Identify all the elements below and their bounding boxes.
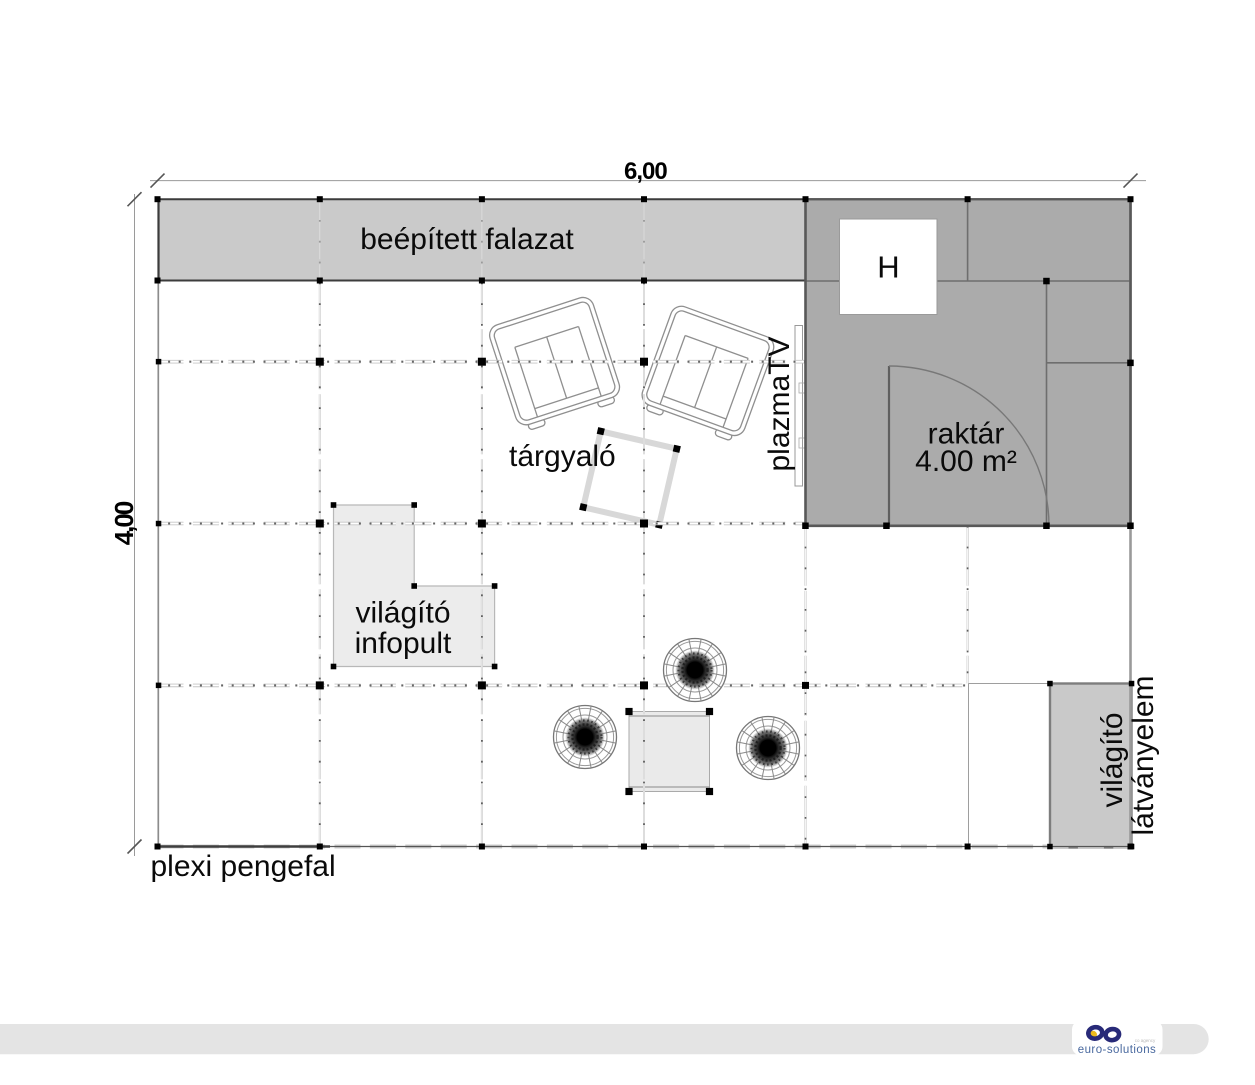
svg-text:plexi pengefal: plexi pengefal xyxy=(151,850,336,883)
svg-text:plazmaTV: plazmaTV xyxy=(763,336,796,471)
svg-text:4.00 m²: 4.00 m² xyxy=(915,445,1017,478)
svg-text:látványelem: látványelem xyxy=(1127,675,1160,835)
svg-text:világító: világító xyxy=(1096,712,1129,807)
svg-text:6,00: 6,00 xyxy=(624,158,667,185)
svg-text:euro-solutions: euro-solutions xyxy=(1078,1044,1157,1056)
svg-text:tárgyaló: tárgyaló xyxy=(509,440,616,473)
svg-text:4,00: 4,00 xyxy=(109,501,139,545)
svg-text:beépített falazat: beépített falazat xyxy=(360,223,574,256)
svg-text:világító: világító xyxy=(355,597,450,630)
svg-text:H: H xyxy=(877,250,899,285)
svg-text:infopult: infopult xyxy=(355,627,452,660)
svg-text:co agency: co agency xyxy=(1135,1038,1156,1043)
